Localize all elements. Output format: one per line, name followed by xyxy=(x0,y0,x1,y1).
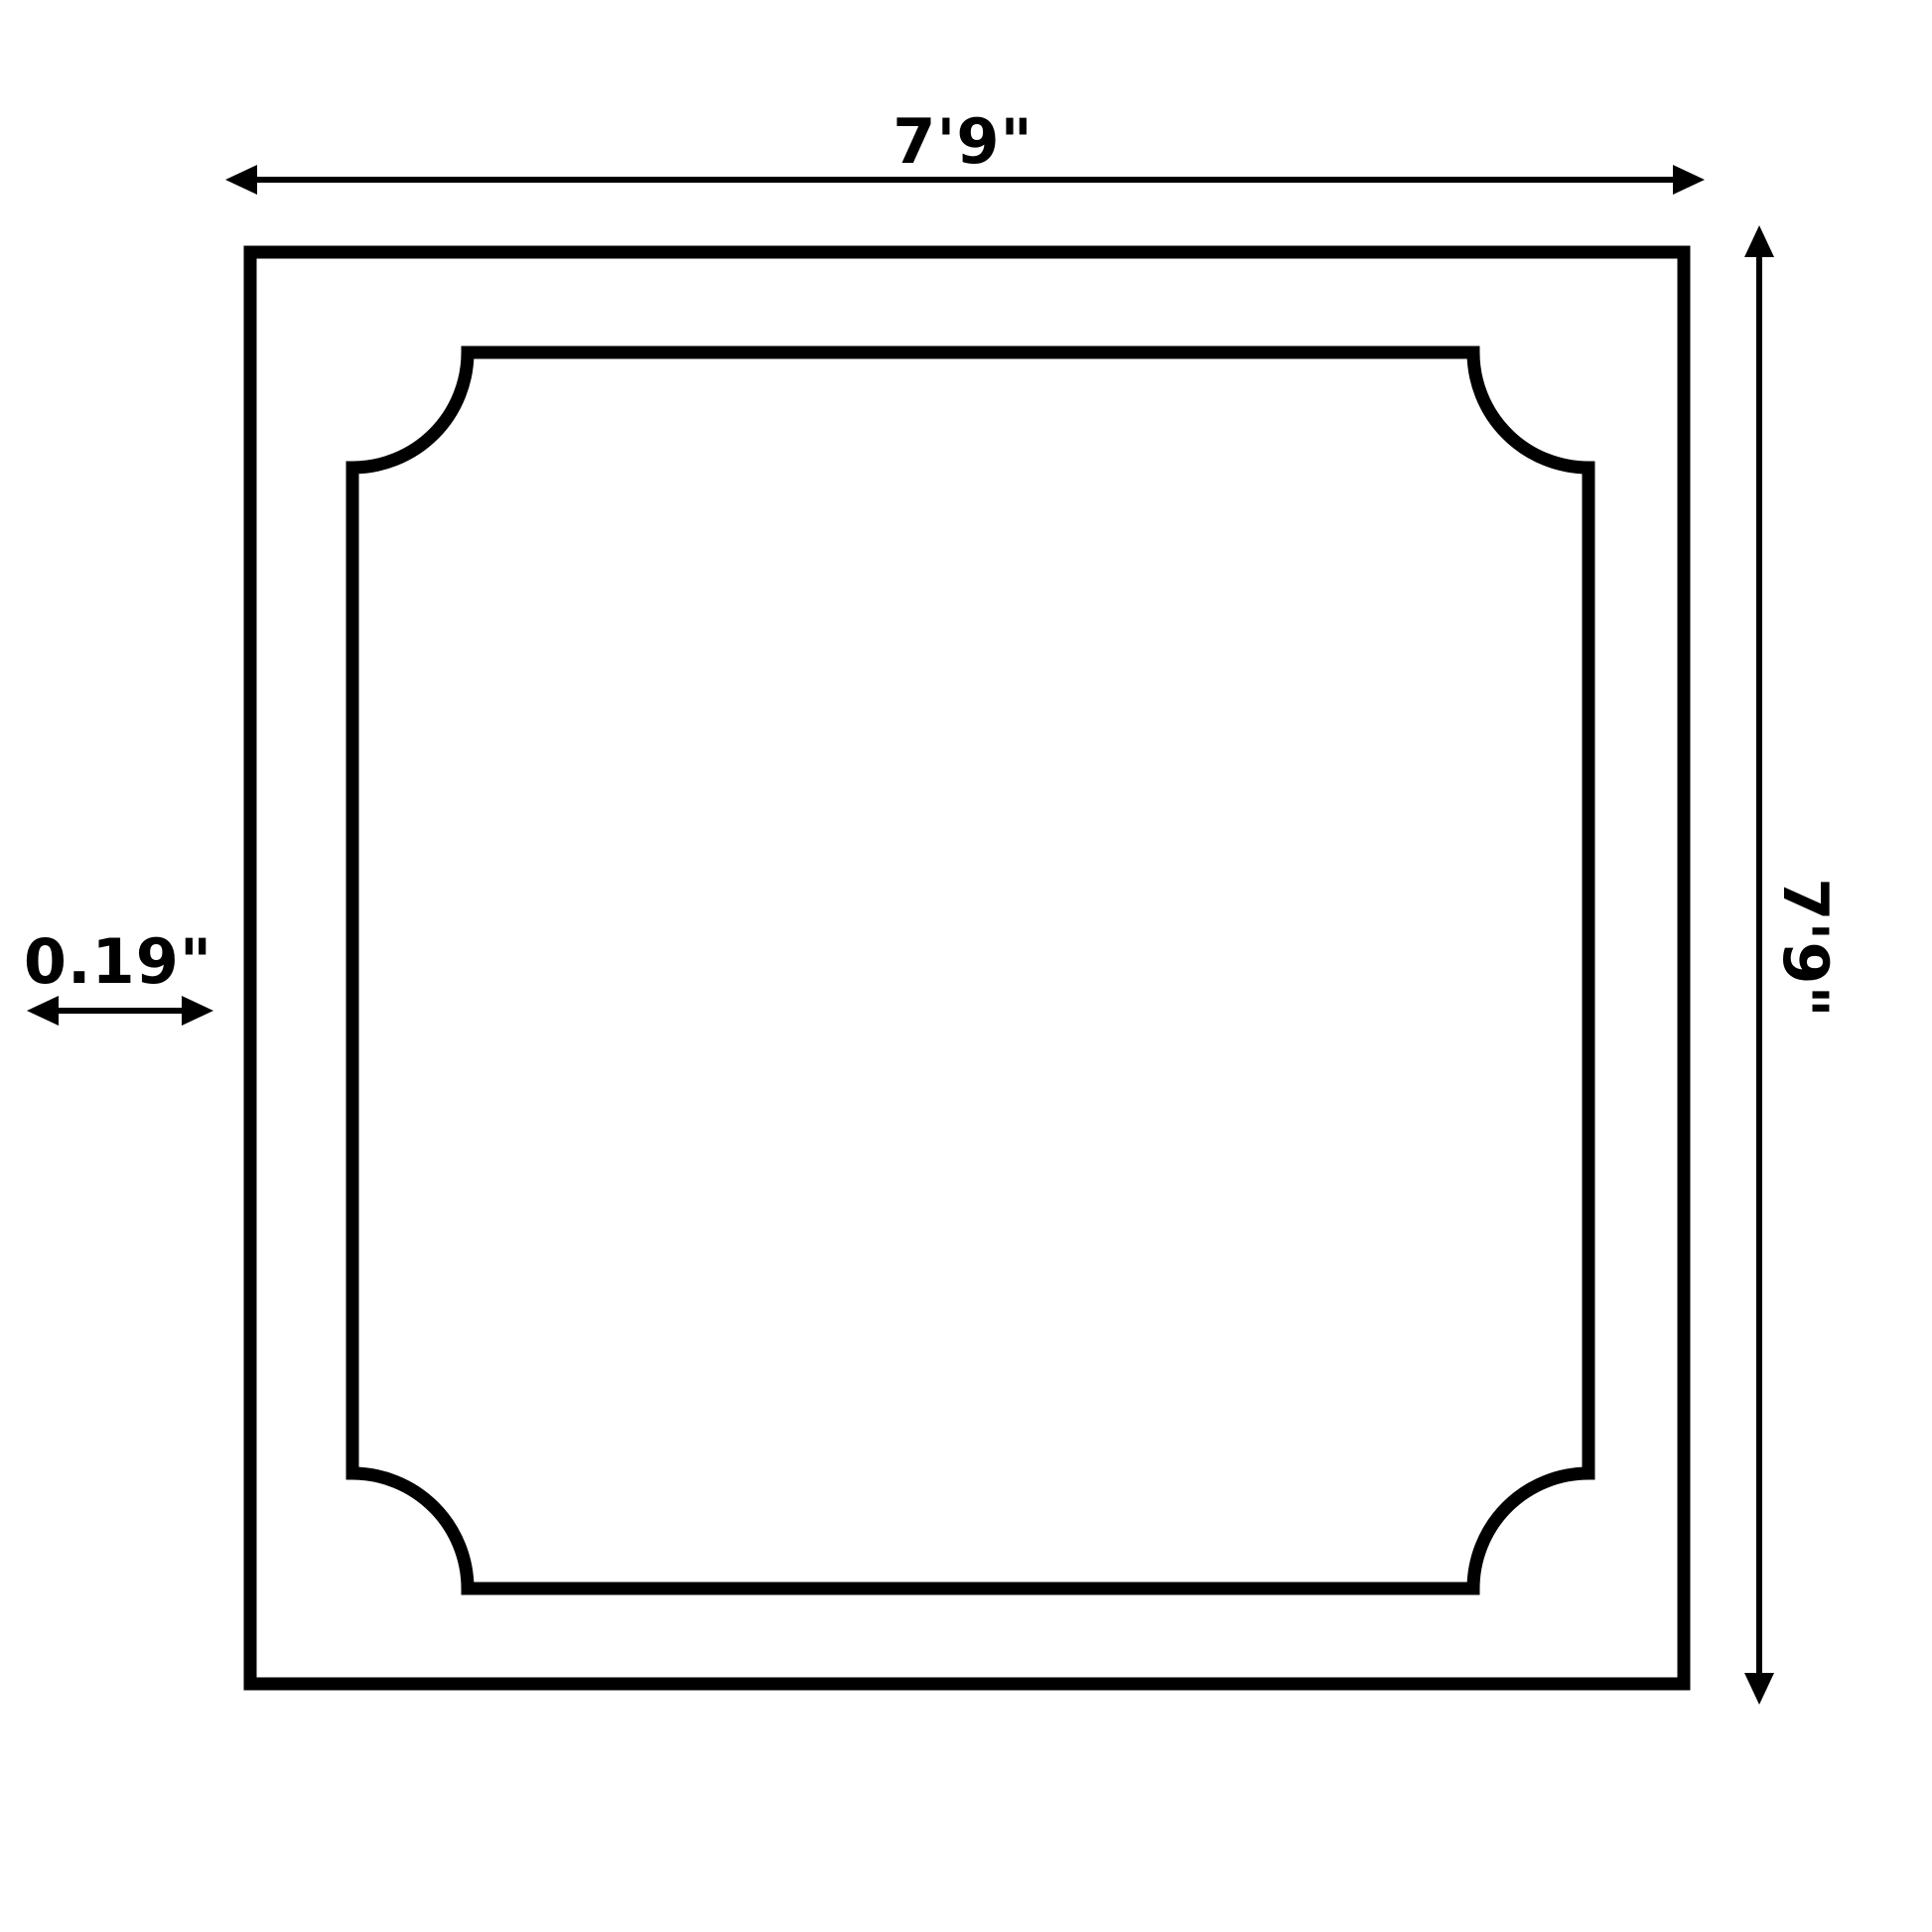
thickness-dimension-arrow-icon xyxy=(27,996,213,1026)
width-dimension-label: 7'9" xyxy=(893,111,1034,173)
dimension-drawing xyxy=(0,0,1932,1932)
thickness-dimension-label: 0.19" xyxy=(24,931,212,993)
inner-panel-outline xyxy=(352,352,1588,1588)
outer-square-outline xyxy=(250,252,1684,1684)
diagram-canvas: 7'9" 7'9" 0.19" xyxy=(0,0,1932,1932)
height-dimension-label: 7'9" xyxy=(1774,878,1836,1019)
